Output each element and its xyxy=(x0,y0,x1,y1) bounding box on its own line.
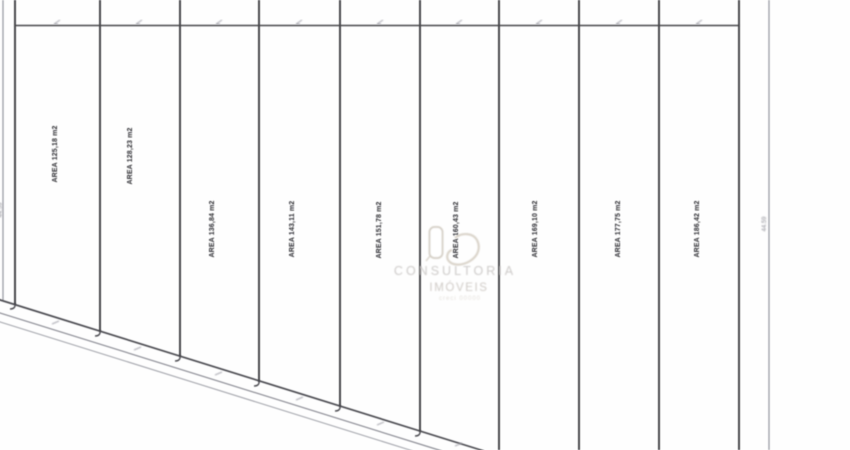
svg-text:CONSULTORIA: CONSULTORIA xyxy=(394,264,516,278)
svg-text:AREA 136,84 m2: AREA 136,84 m2 xyxy=(209,200,216,257)
svg-text:AREA 125,18 m2: AREA 125,18 m2 xyxy=(52,125,59,182)
svg-text:AREA 143,11 m2: AREA 143,11 m2 xyxy=(289,201,296,258)
svg-text:AREA 177,75 m2: AREA 177,75 m2 xyxy=(615,200,622,257)
svg-text:AREA 128,23 m2: AREA 128,23 m2 xyxy=(127,127,134,184)
svg-text:creci 00000: creci 00000 xyxy=(439,296,481,302)
svg-text:44.59: 44.59 xyxy=(0,202,4,218)
svg-text:AREA 186,42 m2: AREA 186,42 m2 xyxy=(694,200,701,257)
svg-text:AREA 160,43 m2: AREA 160,43 m2 xyxy=(453,201,460,258)
svg-text:AREA 169,10 m2: AREA 169,10 m2 xyxy=(532,200,539,257)
svg-text:44.59: 44.59 xyxy=(762,216,768,232)
svg-text:AREA 151,78 m2: AREA 151,78 m2 xyxy=(376,201,383,258)
svg-text:IMÓVEIS: IMÓVEIS xyxy=(429,281,488,294)
